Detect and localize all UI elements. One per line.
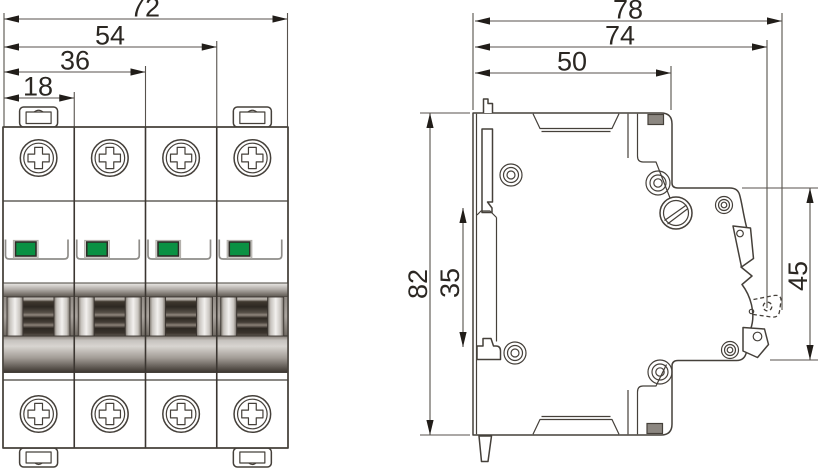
toggle-handle-side bbox=[150, 297, 166, 336]
toggle-handle-side bbox=[268, 297, 284, 336]
toggle-handle-side bbox=[125, 297, 141, 336]
dim-label-18: 18 bbox=[23, 72, 53, 102]
front-view: 72 54 36 18 bbox=[3, 0, 288, 467]
toggle-handle-side bbox=[78, 297, 94, 336]
dim-label-74: 74 bbox=[605, 21, 635, 51]
dim-label-54: 54 bbox=[95, 21, 125, 51]
dim-label-36: 36 bbox=[60, 46, 90, 76]
contact-status-indicator bbox=[229, 242, 250, 256]
contact-status-indicator bbox=[16, 242, 37, 256]
bottom-terminal-shutter bbox=[647, 424, 663, 434]
toggle-handle-grip[interactable] bbox=[166, 297, 197, 336]
dim-label-45: 45 bbox=[783, 261, 813, 291]
dim-label-35: 35 bbox=[435, 268, 465, 298]
bottom-mounting-clip bbox=[20, 448, 58, 467]
toggle-handle-side bbox=[221, 297, 237, 336]
toggle-handle-side bbox=[197, 297, 213, 336]
toggle-handle-side bbox=[54, 297, 70, 336]
breaker-dimension-drawing: 72 54 36 18 bbox=[0, 0, 824, 469]
toggle-handle-grip[interactable] bbox=[237, 297, 268, 336]
dimension-din-rail-recess: 35 bbox=[435, 208, 467, 347]
contact-status-indicator bbox=[158, 242, 179, 256]
dim-label-50: 50 bbox=[557, 47, 587, 77]
dim-label-72: 72 bbox=[130, 0, 160, 23]
breaker-body-profile bbox=[473, 113, 753, 435]
top-terminal-shutter bbox=[648, 115, 664, 125]
dimension-side-body-depth: 50 bbox=[475, 47, 671, 111]
dim-label-82: 82 bbox=[403, 269, 433, 299]
technical-drawing-canvas: 72 54 36 18 bbox=[0, 0, 824, 469]
toggle-handle-grip[interactable] bbox=[23, 297, 54, 336]
side-view: 78 74 50 82 bbox=[403, 0, 818, 462]
toggle-handle-side bbox=[7, 297, 23, 336]
top-mounting-clip bbox=[20, 107, 58, 127]
toggle-handle-grip[interactable] bbox=[94, 297, 125, 336]
bottom-mounting-clip bbox=[233, 448, 271, 467]
top-mounting-clip bbox=[233, 107, 271, 127]
contact-status-indicator bbox=[87, 242, 108, 256]
